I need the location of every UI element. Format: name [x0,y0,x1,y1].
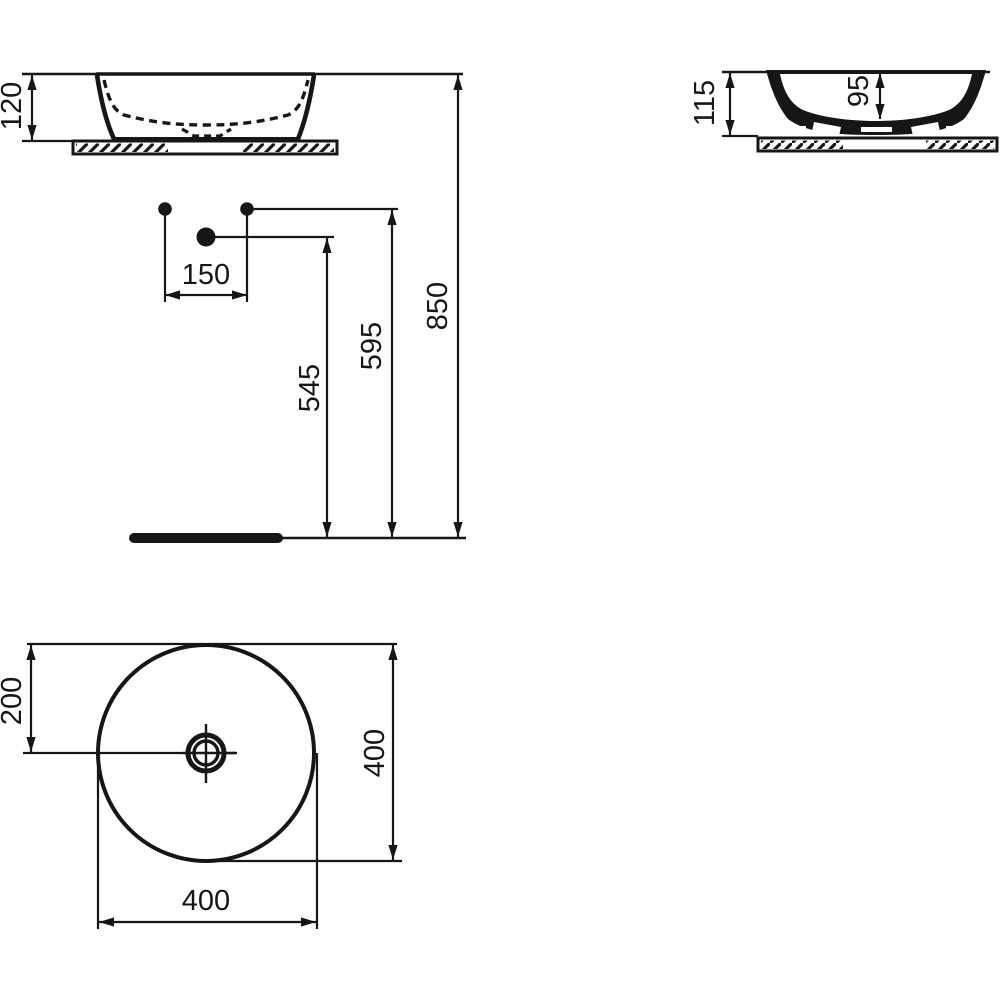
front-view [22,74,463,154]
dim-850-label: 850 [422,282,454,330]
dim-400v-label: 400 [359,729,391,777]
dim-150-label: 150 [182,259,230,291]
dim-120-label: 120 [0,82,28,130]
countertop-hatch-left [76,144,168,153]
dim-200-label: 200 [0,677,28,725]
countertop-hatch-right [243,144,334,153]
drawing-canvas: 120 115 95 [0,0,1000,1000]
dim-95-label: 95 [843,75,875,107]
drain-dashed-outline [182,129,231,136]
foot-slot-center [861,127,892,132]
section-slab-hatch-left [761,141,843,150]
dim-595-label: 595 [356,322,388,370]
inner-bowl-dashed-contour [104,80,308,125]
technical-drawing-washbasin: 120 115 95 [0,0,1000,1000]
foot-slot-right [946,126,963,131]
foot-slot-left [789,126,806,131]
dim-545-label: 545 [294,364,326,412]
section-slab-hatch-right [926,141,994,150]
dim-400h-label: 400 [182,885,230,917]
dim-115-label: 115 [689,80,721,126]
